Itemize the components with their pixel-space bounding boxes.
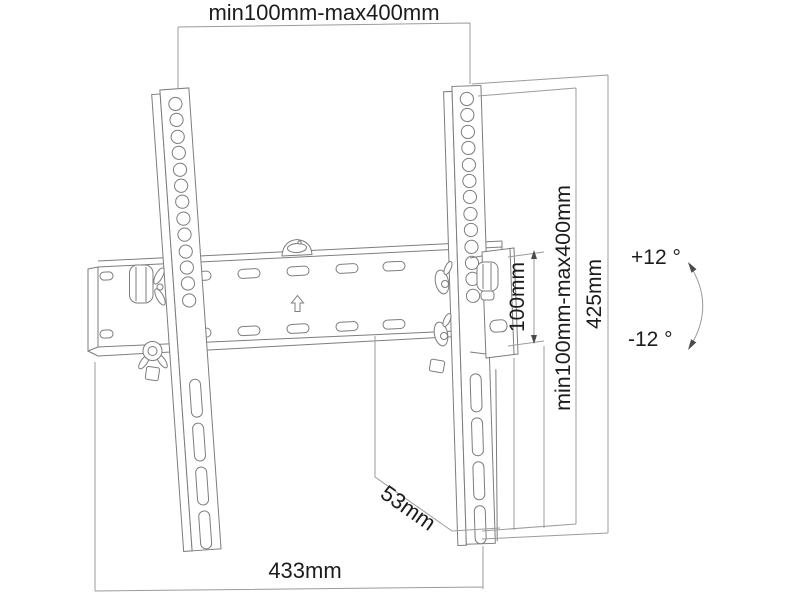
dim-overall-width (95, 362, 483, 591)
left-tilt-knob (130, 265, 168, 307)
label-tilt-up: +12 ° (631, 246, 681, 269)
label-overall-width: 433mm (268, 558, 341, 583)
side-bracket-knob (477, 262, 498, 291)
level-indicator (282, 240, 312, 257)
dim-top-width (178, 23, 470, 89)
plate-left-end-cap (88, 267, 98, 351)
diagram-canvas: min100mm-max400mm 433mm 100mm min100mm-m… (0, 0, 800, 600)
mount-technical-drawing: min100mm-max400mm 433mm 100mm min100mm-m… (0, 0, 800, 600)
label-tilt-down: -12 ° (628, 328, 673, 351)
label-depth: 53mm (376, 480, 440, 536)
label-top-width-range: min100mm-max400mm (208, 0, 439, 25)
label-overall-height: 425mm (583, 259, 606, 329)
left-fixing-bolt (137, 342, 169, 381)
tilt-arc-arrow (688, 262, 703, 350)
label-plate-height: 100mm (506, 262, 529, 332)
label-vertical-range: min100mm-max400mm (551, 185, 575, 411)
